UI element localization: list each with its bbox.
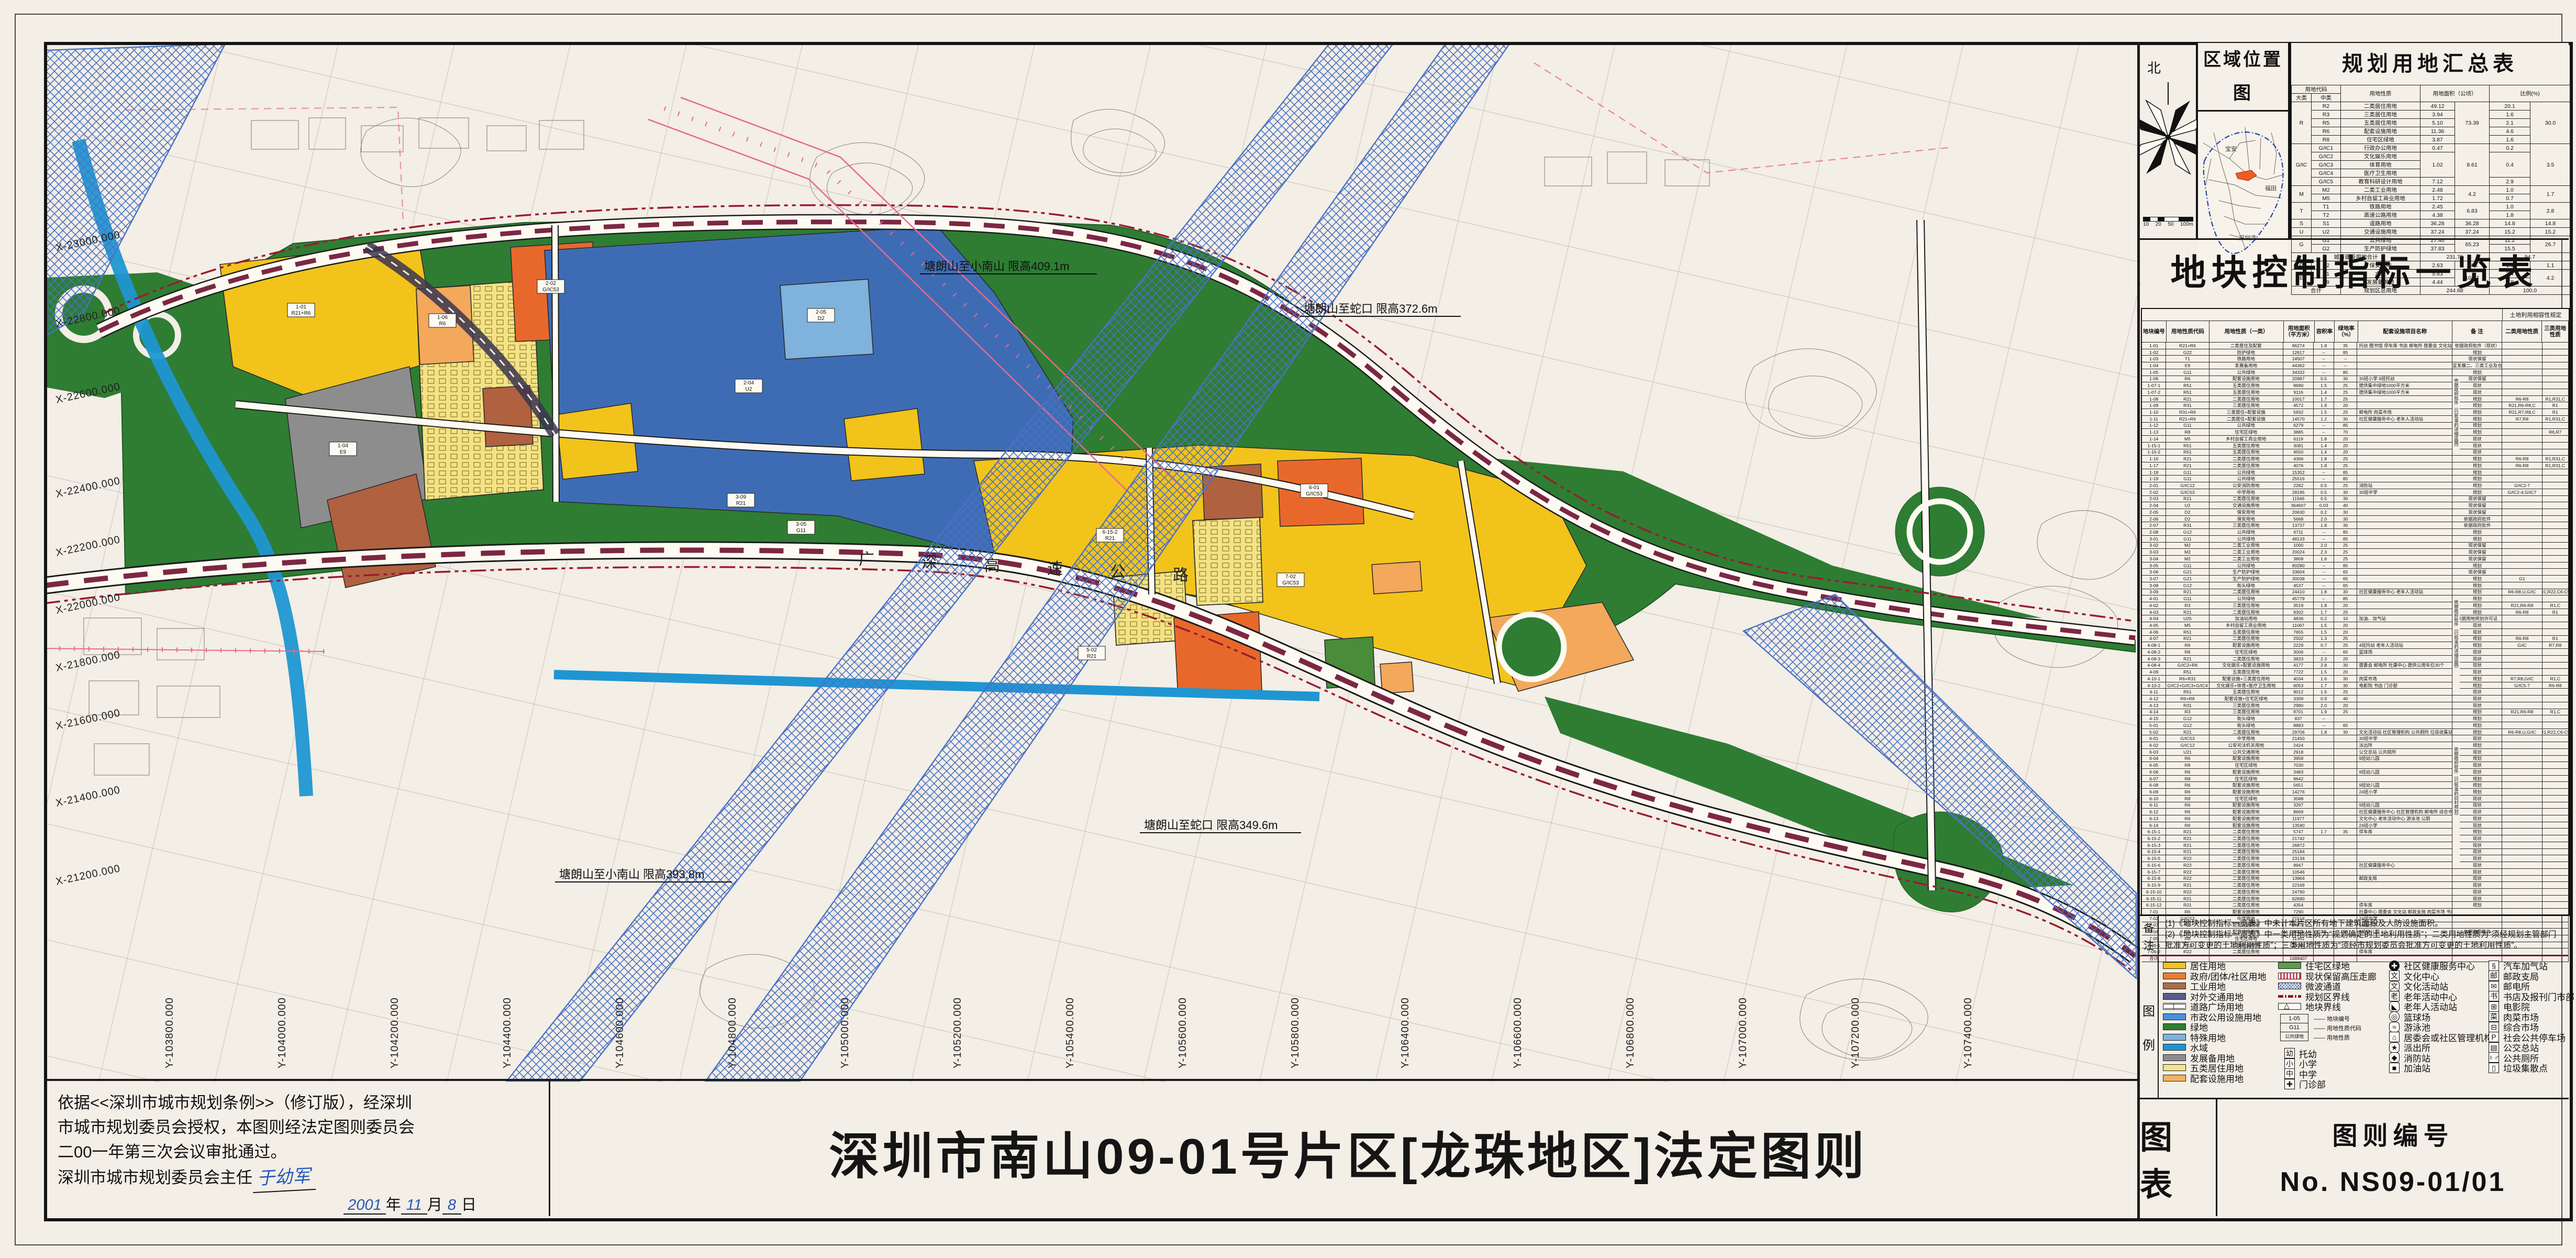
control-row[interactable]: 4-02R3三类居住用地35191.820规划R21,R6-R8R1,C	[2142, 602, 2569, 609]
label-baoan: 宝安	[2225, 145, 2237, 152]
bottom-strip-divider	[44, 1079, 2140, 1081]
legend-item-地块界线: 地块界线	[2278, 1001, 2380, 1012]
老年活动中心-icon: 老	[2389, 991, 2400, 1001]
control-row[interactable]: 1-08R21二类居住用地100171.725规划R6-R8R1,R31,C	[2142, 396, 2569, 403]
legend-item-托幼: 幼托幼	[2278, 1049, 2380, 1059]
summary-row[interactable]: R8住宅区绿地3.871.6	[2292, 136, 2571, 144]
summary-table-title: 规划用地汇总表	[2291, 43, 2569, 85]
control-row[interactable]: 4-10-2G/IC2+G/IC3+G/IC4文化娱乐+体育+医疗卫生用地605…	[2142, 682, 2569, 689]
control-row[interactable]: 4-08-3R21二类居住用地38332.320现状	[2142, 656, 2569, 663]
小学-icon: 小	[2284, 1058, 2295, 1069]
control-row[interactable]: 6-09R6配套设施用地1427624班小学规划	[2142, 789, 2569, 796]
control-row[interactable]: 1-07-1R51五类居住用地96901.525提供集中绿地1000平方米现状	[2142, 382, 2569, 389]
control-row[interactable]: 1-16R21二类居住用地43661.825规划R6-R8R1,R31,C	[2142, 456, 2569, 462]
control-row[interactable]: 6-08R6配套设施用地56519班幼儿园规划	[2142, 782, 2569, 789]
day-suffix: 日	[461, 1197, 476, 1213]
control-row[interactable]: 6-14R6配套设施用地1359024班小学现状	[2142, 822, 2569, 829]
approval-line: 市城市规划委员会授权，本图则经法定图则委员会	[58, 1115, 539, 1140]
approval-box-divider	[549, 1079, 550, 1216]
control-row[interactable]: 1-19G11公共绿地25516--85规划	[2142, 476, 2569, 482]
legend-item-特殊用地: 特殊用地	[2163, 1032, 2275, 1043]
control-row[interactable]: 6-15-10R22二类居住用地24790现状	[2142, 889, 2569, 896]
control-row[interactable]: 6-07R8住宅区绿地9642规划	[2142, 776, 2569, 782]
门诊部-icon: ✚	[2284, 1079, 2295, 1089]
month-suffix: 月	[427, 1197, 442, 1213]
公交总站-icon: ▤	[2489, 1042, 2499, 1053]
control-row[interactable]: 1-01R21+R6二类居住及配套862741.835托幼 图书馆 停车库 书店…	[2142, 343, 2569, 349]
control-col-header: 绿地率（%）	[2335, 321, 2358, 342]
control-row[interactable]: 4-14R3三类居住用地87011.925规划R21,R6-R8R1,C	[2142, 709, 2569, 716]
control-row[interactable]: 3-02M2二类工业用地10002.025现状保留	[2142, 543, 2569, 549]
综合市场-icon: ⊟	[2489, 1022, 2499, 1032]
control-row[interactable]: 3-04M2二类工业用地38081.625现状保留	[2142, 556, 2569, 562]
approval-line: 二00一年第三次会议审批通过。	[58, 1140, 539, 1164]
summary-header-row: 用地代码 用地性质 用地面积（公顷） 比例(%)	[2292, 85, 2571, 94]
legend-swatch	[2278, 983, 2301, 989]
control-row[interactable]: 1-15-2R51五类居住用地45501.420现状	[2142, 449, 2569, 456]
legend-col-facilities2: §汽车加气站邮邮政支局✉邮电所书书店及报刊门市部⊞电影院菜肉菜市场⊟综合市场P社…	[2482, 961, 2576, 1073]
control-col-header: 二类用地性质	[2502, 321, 2542, 342]
control-row[interactable]: 1-04E9发展备用地44362----不宜发展二、三类工业及仓储	[2142, 362, 2569, 369]
垃圾集散点-icon: ▯	[2489, 1063, 2499, 1073]
control-row[interactable]: 2-02G/IC53中学用地281950.53030班中学规划G/IC2-4,G…	[2142, 489, 2569, 496]
社会公共停车场-icon: P	[2489, 1032, 2499, 1042]
legend-item-居委会或社区管理机构: ⌂居委会或社区管理机构	[2383, 1032, 2480, 1043]
summary-row[interactable]: M5乡村自留工商业用地1.720.7	[2292, 194, 2571, 203]
消防站-icon: ◆	[2389, 1052, 2400, 1063]
plan-no: No. NS09-01/01	[2217, 1166, 2569, 1198]
scale-tick: 100m	[2180, 222, 2193, 227]
control-row[interactable]: 4-05M5乡村自留工商业用地110671.520现状	[2142, 622, 2569, 629]
control-row[interactable]: 4-12R6+R8配套设施+住宅区绿地33090.940现状	[2142, 696, 2569, 702]
legend-section: 图例 居住用地政府/团体/社区用地工业用地对外交通用地道路广场用地市政公用设施用…	[2140, 955, 2569, 1098]
control-row[interactable]: 3-06G21生产防护绿地33604--65现状保留	[2142, 569, 2569, 576]
control-col-header: 备 注	[2452, 321, 2502, 342]
control-row[interactable]: 6-02G/IC12公安司法机关用地2424派出所规划	[2142, 742, 2569, 749]
legend-swatch	[2163, 993, 2186, 1000]
control-row[interactable]: 1-10R31+R6三类居住+配套设施59321.525邮电所 肉菜市场规划R2…	[2142, 409, 2569, 416]
control-row[interactable]: 6-15-3R21二类居住用地26872现状	[2142, 842, 2569, 849]
legend-swatch	[2163, 1034, 2186, 1041]
summary-row[interactable]: TT1铁路用地2.456.831.02.8	[2292, 203, 2571, 211]
control-row[interactable]: 6-15-7R22二类居住用地10546现状	[2142, 869, 2569, 876]
legend-item-派出所: ★派出所	[2383, 1042, 2480, 1053]
north-label: 北	[2140, 43, 2196, 77]
control-row[interactable]: 4-01G11公共绿地45779--85规划	[2142, 595, 2569, 602]
legend-item-小学: 小小学	[2278, 1058, 2380, 1069]
control-row[interactable]: 1-09R31三类居住用地45721.920规划R21,R6-R8,CR1	[2142, 402, 2569, 409]
control-row[interactable]: 6-15-9R21二类居住用地22169现状	[2142, 882, 2569, 889]
control-row[interactable]: 6-04R6配套设施用地39589班幼儿园规划	[2142, 756, 2569, 763]
remark-band: 依据政府批件（已批准的详细蓝图）	[2452, 600, 2460, 692]
legend-item-配套设施用地: 配套设施用地	[2163, 1073, 2275, 1084]
legend-col-landuse: 居住用地政府/团体/社区用地工业用地对外交通用地道路广场用地市政公用设施用地绿地…	[2163, 961, 2275, 1083]
control-row[interactable]: 3-07G21生产防护绿地30038--65规划G1	[2142, 576, 2569, 582]
control-row[interactable]: 4-11R51五类居住用地90121.625现状	[2142, 689, 2569, 696]
control-row[interactable]: 4-08-4G/IC2+R6文化娱乐+配套设施用地41772.830居委会 邮电…	[2142, 663, 2569, 669]
control-col-header: 地块编号	[2142, 321, 2167, 342]
summary-row[interactable]: UU2交通设施用地37.2437.2415.215.2	[2292, 228, 2571, 236]
sheet-id-section: 图 表 图则编号 No. NS09-01/01	[2140, 1098, 2569, 1216]
legend-item-门诊部: ✚门诊部	[2278, 1079, 2380, 1089]
control-row[interactable]: 4-06R51五类居住用地76551.520现状	[2142, 629, 2569, 636]
plan-sheet: 塘朗山至小南山 限高409.1m塘朗山至蛇口 限高372.6m塘朗山至蛇口 限高…	[0, 0, 2576, 1258]
legend-item-垃圾集散点: ▯垃圾集散点	[2482, 1063, 2576, 1073]
control-row[interactable]: 5-01G12街头绿地8883--65规划	[2142, 722, 2569, 729]
chairman-signature: 于幼军	[252, 1163, 316, 1193]
control-row[interactable]: 2-05D2保安用地206300.230现状保留	[2142, 509, 2569, 516]
plan-no-label: 图则编号	[2217, 1115, 2569, 1152]
diagram-plot-nature: 公共绿地	[2280, 1032, 2308, 1041]
邮政支局-icon: 邮	[2489, 970, 2499, 981]
中学-icon: 中	[2284, 1068, 2295, 1079]
chart-label: 图 表	[2140, 1111, 2216, 1205]
diagram-label: —— 地块编号	[2314, 1014, 2350, 1023]
legend-swatch	[2163, 1023, 2186, 1030]
control-row[interactable]: 3-03M2二类工业用地200242.325现状保留	[2142, 549, 2569, 556]
control-row[interactable]: 1-18G11公共绿地15352--85规划	[2142, 469, 2569, 476]
control-row[interactable]: 1-12G11公共绿地6279--85规划	[2142, 423, 2569, 429]
note-item: (2)《地块控制指标一览表》中一类用地性质为“规划确定的土地利用性质”；二类用地…	[2165, 929, 2563, 951]
legend-swatch	[2278, 962, 2301, 969]
summary-row[interactable]: R5五类居住用地5.102.1	[2292, 119, 2571, 127]
legend-item-加油站: ■加油站	[2383, 1063, 2480, 1073]
托幼-icon: 幼	[2284, 1048, 2295, 1058]
date-month: 11	[401, 1197, 427, 1215]
篮球场-icon: ◎	[2389, 1011, 2400, 1022]
control-row[interactable]: 4-08-1R6配套设施用地22290.7254班托幼 老年人活动站规划G/IC…	[2142, 642, 2569, 649]
diagram-label: —— 用地性质	[2314, 1033, 2350, 1042]
date-year: 2001	[343, 1197, 386, 1215]
legend-swatch	[2278, 973, 2301, 979]
summary-header-area: 用地面积（公顷）	[2420, 85, 2490, 102]
year-suffix: 年	[386, 1197, 401, 1213]
notes-label: 备注	[2140, 916, 2159, 955]
control-row[interactable]: 6-15-6R22二类居住用地9947社区健康服务中心现状	[2142, 862, 2569, 869]
legend-item-篮球场: ◎篮球场	[2383, 1012, 2480, 1022]
control-row[interactable]: 6-12R6配套设施用地8669社区健康服务中心 社区管理机构 邮电所 综合市场…	[2142, 809, 2569, 815]
legend-swatch	[2163, 1003, 2186, 1010]
肉菜市场-icon: 菜	[2489, 1011, 2499, 1022]
汽车加气站-icon: §	[2489, 961, 2499, 971]
control-row[interactable]: 2-06D2保安用地56682.030依据政府批件	[2142, 516, 2569, 523]
control-col-header: 用地性质（一类）	[2209, 321, 2284, 342]
control-row[interactable]: 4-07R21二类居住用地25021.325规划R6-R8R1	[2142, 636, 2569, 643]
control-row[interactable]: 6-03U21公共交通用地2918公交总站 公共厕所现状	[2142, 749, 2569, 756]
wind-rose	[2140, 77, 2196, 197]
control-row[interactable]: 3-08G12街头绿地4537--65规划	[2142, 582, 2569, 589]
control-table-section: 地块控制指标一览表 土地利用相容性规定 地块编号用地性质代码用地性质（一类）用地…	[2140, 238, 2569, 914]
summary-row[interactable]: MM2二类工业用地2.484.21.01.7	[2292, 186, 2571, 194]
control-row[interactable]: 1-11R21+R6二类居住+配套设施145701.230社区健康服务中心 老年…	[2142, 416, 2569, 423]
legend-swatch	[2163, 962, 2186, 969]
control-row[interactable]: 4-15G12街头绿地837--规划	[2142, 715, 2569, 722]
control-row[interactable]: 2-03R21二类居住用地119460.530现状保留	[2142, 496, 2569, 503]
派出所-icon: ★	[2389, 1042, 2400, 1053]
control-row[interactable]: 3-01G11公共绿地48133--85规划	[2142, 536, 2569, 543]
legend-item-中学: 中中学	[2278, 1069, 2380, 1079]
summary-row[interactable]: SS1道路用地36.2836.2814.814.8	[2292, 219, 2571, 228]
legend-col-lines: 住宅区绿地现状保留高压走廊微波通道规划区界线地块界线1-05 G11 公共绿地 …	[2278, 961, 2380, 1089]
control-row[interactable]: 3-09R21二类居住用地244101.830社区健康服务中心 老年人活动站规划…	[2142, 589, 2569, 596]
location-map-box: 区域位置图 宝安 福田 深圳湾	[2196, 43, 2290, 238]
control-row[interactable]: 6-15-2R21二类居住用地21742现状	[2142, 835, 2569, 842]
control-row[interactable]: 5-02R21二类居住用地297061.830文化活动站 社区管理机构 公共厕所…	[2142, 729, 2569, 736]
summary-row[interactable]: R6配套设施用地11.364.6	[2292, 127, 2571, 136]
location-map-title: 区域位置图	[2198, 43, 2288, 112]
control-row[interactable]: 6-15-12R21二类居住用地4354停车库规划	[2142, 902, 2569, 909]
notes-body: (1)《地块控制指标一览表》中未计本片区所有地下建筑面积及人防设施面积。(2)《…	[2159, 916, 2569, 955]
control-row[interactable]: 4-03R21二类居住用地93021.725规划R6-R8R1	[2142, 609, 2569, 616]
control-row[interactable]: 6-15-8R22二类居住用地13964邮政支局现状	[2142, 876, 2569, 882]
legend-swatch	[2163, 1064, 2186, 1071]
文化活动站-icon: 文	[2389, 981, 2400, 991]
control-col-header: 配套设施项目名称	[2358, 321, 2452, 342]
control-row[interactable]: 1-03T1铁路用地24507----现状保留	[2142, 356, 2569, 362]
control-table[interactable]: 土地利用相容性规定 地块编号用地性质代码用地性质（一类）用地面积（平方米）容积率…	[2141, 308, 2570, 916]
plot-label-diagram: 1-05 G11 公共绿地 —— 地块编号 —— 用地性质代码 —— 用地性质	[2280, 1014, 2380, 1046]
公共厕所-icon: ♀♂	[2489, 1052, 2499, 1063]
control-row[interactable]: 4-10-1R6+R31配套设施+三类居住用地40341.630肉菜市场规划R7…	[2142, 676, 2569, 682]
control-col-header: 用地面积（平方米）	[2284, 321, 2315, 342]
summary-row[interactable]: R3三类居住用地3.941.6	[2292, 111, 2571, 119]
control-col-header: 容积率	[2315, 321, 2335, 342]
control-row[interactable]: 2-07R31三类居住用地137371.830依据政府批件	[2142, 522, 2569, 529]
书店及报刊门市部-icon: 书	[2489, 991, 2499, 1001]
control-table-title: 地块控制指标一览表	[2140, 240, 2569, 306]
control-row[interactable]: 6-11R6配套设施用地32979班幼儿园现状	[2142, 802, 2569, 809]
control-row[interactable]: 1-05G11公共绿地34332--85规划	[2142, 369, 2569, 376]
remark-band: 依据政府批件（已批准的详细蓝图）	[2452, 378, 2460, 452]
legend-swatch	[2163, 1075, 2186, 1082]
summary-header-code: 用地代码	[2292, 85, 2341, 94]
邮电所-icon: ✉	[2489, 981, 2499, 991]
scale-tick: 20	[2156, 222, 2161, 227]
control-row[interactable]: 1-07-2R51五类居住用地91161.425提供集中绿地1000平方米现状	[2142, 389, 2569, 396]
page-title: 深圳市南山09-01号片区[龙珠地区]法定图则	[602, 1116, 2094, 1188]
control-row[interactable]: 4-08-2R8住宅区绿地3006--65篮球场现状	[2142, 649, 2569, 656]
control-row[interactable]: 6-15-4R21二类居住用地25184现状	[2142, 849, 2569, 856]
summary-row[interactable]: G/IC2文化娱乐用地1.020.4	[2292, 152, 2571, 161]
control-row[interactable]: 2-08G12公共绿地6711--85规划	[2142, 529, 2569, 536]
control-row[interactable]: 3-05G11公共绿地80280--85规划	[2142, 562, 2569, 569]
diagram-plot-id: 1-05	[2280, 1014, 2308, 1023]
note-item: (1)《地块控制指标一览表》中未计本片区所有地下建筑面积及人防设施面积。	[2165, 918, 2563, 929]
control-col-header: 用地性质代码	[2167, 321, 2209, 342]
control-row[interactable]: 6-01G/IC53中学用地2145030班中学现状	[2142, 735, 2569, 742]
legend-swatch	[2278, 1003, 2301, 1010]
label-futian: 福田	[2265, 184, 2277, 192]
control-row[interactable]: 6-06R6配套设施用地34839班幼儿园现状	[2142, 769, 2569, 776]
电影院-icon: ⊞	[2489, 1001, 2499, 1012]
legend-swatch	[2163, 973, 2186, 979]
legend-col-facilities1: ✚社区健康服务中心文文化中心文文化活动站老老年活动中心◣老年人活动站◎篮球场≈游…	[2383, 961, 2480, 1073]
control-row[interactable]: 1-13R8住宅区绿地3885--70规划R6,R7	[2142, 429, 2569, 436]
scale-tick: 10	[2143, 222, 2149, 227]
control-col-header: 三类用地性质	[2542, 321, 2569, 342]
居委会或社区管理机构-icon: ⌂	[2389, 1032, 2400, 1042]
control-row[interactable]: 6-05R8住宅区绿地7030现状	[2142, 762, 2569, 769]
legend-swatch	[2163, 1044, 2186, 1051]
diagram-label: —— 用地性质代码	[2314, 1024, 2361, 1032]
date-day: 8	[442, 1197, 461, 1215]
文化中心-icon: 文	[2389, 970, 2400, 981]
control-row[interactable]: 4-13R31三类居住用地29802.020现状	[2142, 702, 2569, 709]
社区健康服务中心-icon: ✚	[2389, 961, 2400, 971]
control-row[interactable]: 1-06R6配套设施用地209870.53030班小学 9班托幼现状保留	[2142, 376, 2569, 383]
control-row[interactable]: 1-15-1R51五类居住用地30811.420现状	[2142, 443, 2569, 449]
scale-tick: 50	[2168, 222, 2173, 227]
legend-swatch	[2163, 1013, 2186, 1020]
control-row[interactable]: 1-14M5乡村自留工商业用地61191.820现状	[2142, 436, 2569, 443]
control-row[interactable]: 6-10R8住宅区绿地3588现状	[2142, 796, 2569, 802]
control-row[interactable]: 4-04U25加油站用地48360.210加油、加气站依据用地规划许可证	[2142, 615, 2569, 622]
scale-bar: 102050100m	[2143, 217, 2193, 227]
control-row[interactable]: 6-15-5R22二类居住用地23134现状	[2142, 855, 2569, 862]
control-row[interactable]: 4-09R51五类居住用地77221.520现状	[2142, 669, 2569, 676]
summary-row[interactable]: T2高速公路用地4.381.8	[2292, 211, 2571, 219]
control-row[interactable]: 6-15-1R21二类居住用地57471.735停车库规划	[2142, 829, 2569, 835]
diagram-plot-code: G11	[2280, 1023, 2308, 1032]
legend-swatch	[2163, 983, 2186, 989]
control-row[interactable]: 2-01G/IC12公安消防用地22820.525消防站规划G/IC2-7	[2142, 482, 2569, 489]
legend-swatch	[2163, 1054, 2186, 1061]
control-row[interactable]: 6-15-11R21二类居住用地62690现状	[2142, 896, 2569, 902]
summary-row[interactable]: G/IC5教育科研设计用地7.122.9	[2292, 178, 2571, 186]
legend-label: 图例	[2140, 956, 2159, 1098]
legend-item-市政公用设施用地: 市政公用设施用地	[2163, 1012, 2275, 1022]
control-row[interactable]: 6-13R6配套设施用地11977文化中心 老年活动中心 游泳池 公厕现状	[2142, 815, 2569, 822]
summary-row[interactable]: G/ICG/IC1行政办公用地0.478.610.23.5	[2292, 144, 2571, 152]
老年人活动站-icon: ◣	[2389, 1001, 2400, 1012]
summary-header-ratio: 比例(%)	[2490, 85, 2571, 102]
control-row[interactable]: 1-17R21二类居住用地40761.825规划R6-R8R1,R31,C	[2142, 462, 2569, 469]
chart-label-box: 图 表	[2140, 1099, 2217, 1216]
compat-group-header: 土地利用相容性规定	[2503, 309, 2569, 321]
summary-header-nature: 用地性质	[2341, 85, 2420, 102]
summary-table-box: 规划用地汇总表 用地代码 用地性质 用地面积（公顷） 比例(%)大类中类RR2二…	[2290, 43, 2569, 238]
notes-section: 备注 (1)《地块控制指标一览表》中未计本片区所有地下建筑面积及人防设施面积。(…	[2140, 914, 2569, 955]
legend-swatch	[2278, 995, 2301, 998]
approval-line: 依据<<深圳市城市规划条例>>（修订版），经深圳	[58, 1090, 539, 1115]
summary-row[interactable]: RR2二类居住用地49.1273.3920.130.0	[2292, 102, 2571, 111]
control-row[interactable]: 1-02G22防护绿地12617--85规划	[2142, 349, 2569, 356]
remark-band: 依据政府批件（已批准的旧村规划）	[2452, 747, 2460, 864]
游泳池-icon: ≈	[2389, 1022, 2400, 1032]
加油站-icon: ■	[2389, 1063, 2400, 1073]
approval-box: 依据<<深圳市城市规划条例>>（修订版），经深圳 市城市规划委员会授权，本图则经…	[58, 1090, 539, 1211]
legend-item-老年人活动站: ◣老年人活动站	[2383, 1001, 2480, 1012]
legend-item-消防站: ◆消防站	[2383, 1053, 2480, 1063]
control-row[interactable]: 2-04U2交通设施用地3646070.0340现状保留	[2142, 502, 2569, 509]
signature-label: 深圳市城市规划委员会主任	[58, 1168, 252, 1187]
